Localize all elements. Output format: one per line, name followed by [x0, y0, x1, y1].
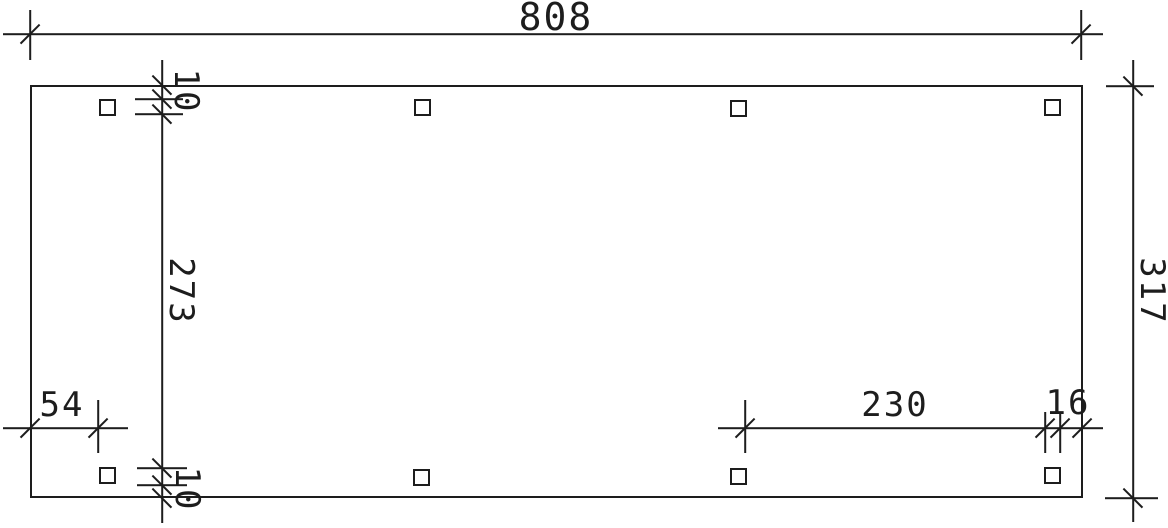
extension-line — [1106, 85, 1154, 87]
post-marker — [99, 467, 116, 484]
dimension-line — [3, 427, 128, 429]
post-marker — [730, 100, 747, 117]
post-marker — [99, 99, 116, 116]
post-marker — [414, 99, 431, 116]
dim-label-total-depth: 317 — [1135, 257, 1168, 324]
dim-label-edge-to-post-top: 10 — [169, 69, 203, 114]
dim-label-edge-to-post-bottom: 10 — [170, 467, 204, 512]
post-marker — [1044, 467, 1061, 484]
dim-label-clear-inner-depth: 273 — [164, 257, 198, 324]
post-marker — [730, 468, 747, 485]
drawing-canvas: 808 317 10 273 10 54 — [0, 0, 1168, 528]
post-marker — [1044, 99, 1061, 116]
dim-label-post-to-right-edge: 16 — [1046, 386, 1091, 420]
dim-label-left-edge-to-post: 54 — [40, 388, 85, 422]
dim-label-total-width: 808 — [519, 0, 594, 36]
dim-label-post-clear-spacing: 230 — [861, 388, 928, 422]
post-marker — [413, 469, 430, 486]
